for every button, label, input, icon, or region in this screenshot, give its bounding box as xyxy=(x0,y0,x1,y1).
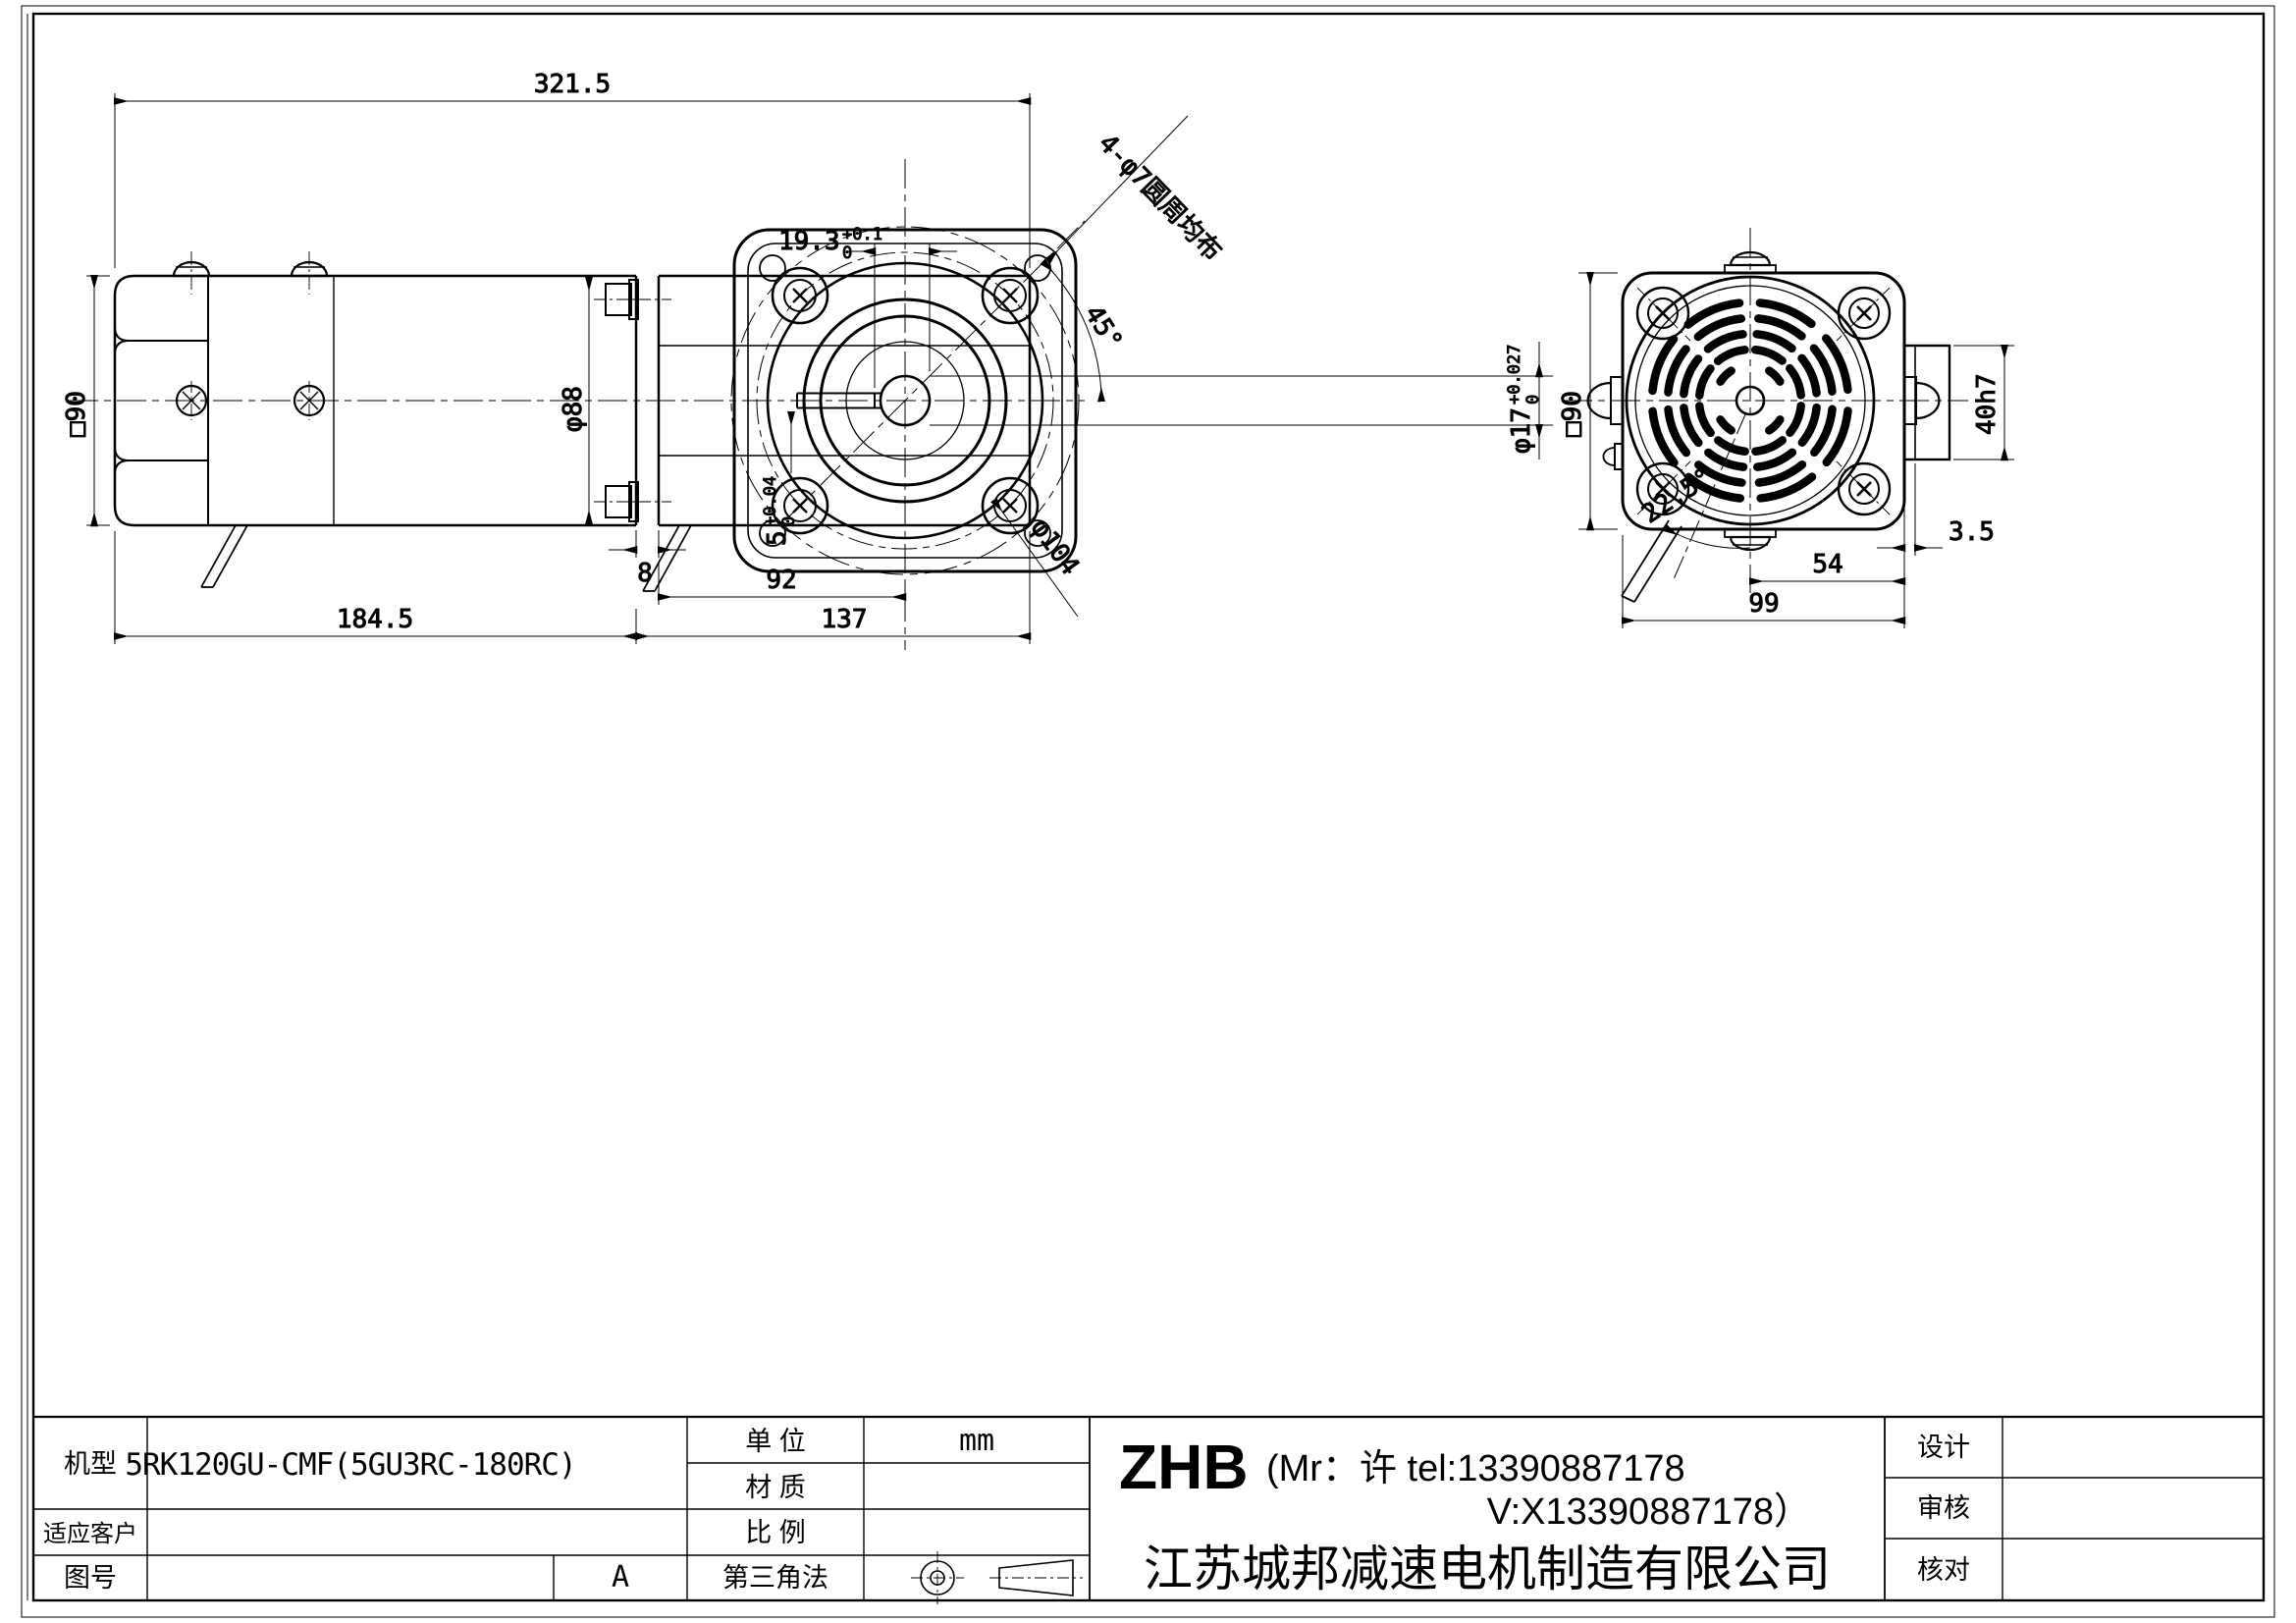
dim-plate-thickness: 3.5 xyxy=(1877,463,1995,556)
shaft-boss-projection xyxy=(1904,346,1949,460)
title-block-text: 机型 5RK120GU-CMF(5GU3RC-180RC) 适应客户 图号 A … xyxy=(43,1424,1970,1596)
lead-wires xyxy=(201,525,691,591)
dim-total-length: 321.5 xyxy=(115,70,1030,268)
dim-text-rear-square: □90 xyxy=(1558,391,1587,437)
cad-drawing: 321.5 □90 φ88 8 92 xyxy=(0,0,2296,1623)
model-value: 5RK120GU-CMF(5GU3RC-180RC) xyxy=(125,1447,575,1483)
dim-text-shaft-offset: 92 xyxy=(766,566,796,595)
motor-top-screw xyxy=(174,251,327,295)
rear-cable xyxy=(1622,520,1682,602)
dim-text-bolt-angle: 45° xyxy=(1079,300,1128,355)
material-label: 材 质 xyxy=(745,1473,806,1502)
dim-text-keyway-width: 5 xyxy=(763,530,792,546)
svg-text:5 +0.04 0: 5 +0.04 0 xyxy=(761,471,799,546)
contact-line1: (Mr：许 tel:13390887178 xyxy=(1266,1448,1685,1489)
dim-bolt-circle: φ104 xyxy=(994,501,1085,617)
dim-motor-square: □90 xyxy=(62,276,110,525)
dim-text-rear-width: 99 xyxy=(1748,589,1779,619)
dim-holes-note: 4-φ7圆周均布 xyxy=(1048,116,1227,267)
dim-motor-diameter: φ88 xyxy=(559,278,589,523)
third-angle-symbol xyxy=(911,1551,1083,1604)
dim-text-total-length: 321.5 xyxy=(534,70,611,99)
dim-text-boss: 40h7 xyxy=(1972,373,2002,435)
dim-joint-gap: 8 xyxy=(609,530,686,588)
contact-line2: V:X13390887178） xyxy=(1487,1491,1811,1533)
page-border xyxy=(22,6,2274,1617)
scale-label: 比 例 xyxy=(745,1518,806,1547)
rear-view xyxy=(1563,228,1968,602)
brand-text: ZHB xyxy=(1119,1432,1249,1502)
unit-value: mm xyxy=(959,1424,994,1458)
model-label: 机型 xyxy=(64,1449,117,1479)
dim-tol-bore-dn: 0 xyxy=(1523,395,1543,405)
dim-text-keyway-depth: 19.3 xyxy=(778,227,840,256)
drawing-no-label: 图号 xyxy=(64,1563,117,1593)
unit-label: 单 位 xyxy=(745,1427,806,1456)
dim-tol-keyway-width-dn: 0 xyxy=(779,516,799,526)
dim-tol-keyway-width-up: +0.04 xyxy=(761,476,780,526)
dim-text-bore: φ17 xyxy=(1507,407,1536,454)
revision-value: A xyxy=(612,1560,629,1595)
dim-text-center-to-edge: 54 xyxy=(1812,550,1842,579)
check-label: 核对 xyxy=(1917,1555,1970,1585)
dim-shaft-offset: 92 xyxy=(659,562,905,605)
dim-center-to-edge: 54 xyxy=(1750,535,1904,593)
company-name: 江苏城邦减速电机制造有限公司 xyxy=(1144,1542,1831,1596)
dim-text-motor-square: □90 xyxy=(62,391,91,437)
svg-text:19.3 +0.1 0: 19.3 +0.1 0 xyxy=(778,225,886,263)
dim-text-gearbox-length: 137 xyxy=(822,605,868,634)
svg-text:φ17 +0.027: φ17 +0.027 0 xyxy=(1505,340,1543,454)
dim-tol-keyway-depth-up: +0.1 xyxy=(842,225,882,244)
drawing-sheet: 321.5 □90 φ88 8 92 xyxy=(0,0,2296,1623)
dim-boss: 40h7 xyxy=(1953,346,2014,460)
dim-text-plate-thickness: 3.5 xyxy=(1949,517,1995,547)
review-label: 审核 xyxy=(1917,1493,1970,1523)
dim-tol-bore-up: +0.027 xyxy=(1505,345,1524,405)
customer-label: 适应客户 xyxy=(43,1521,137,1547)
dim-text-holes-note: 4-φ7圆周均布 xyxy=(1093,129,1227,267)
dim-bore: φ17 +0.027 0 xyxy=(930,340,1553,460)
dim-text-motor-diameter: φ88 xyxy=(559,386,588,432)
dim-text-joint-gap: 8 xyxy=(637,559,653,588)
design-label: 设计 xyxy=(1917,1433,1970,1462)
dim-text-motor-length: 184.5 xyxy=(337,605,413,634)
dim-tol-keyway-depth-dn: 0 xyxy=(842,243,852,263)
dim-bolt-angle: 45° xyxy=(1043,262,1128,401)
projection-label: 第三角法 xyxy=(722,1563,828,1593)
